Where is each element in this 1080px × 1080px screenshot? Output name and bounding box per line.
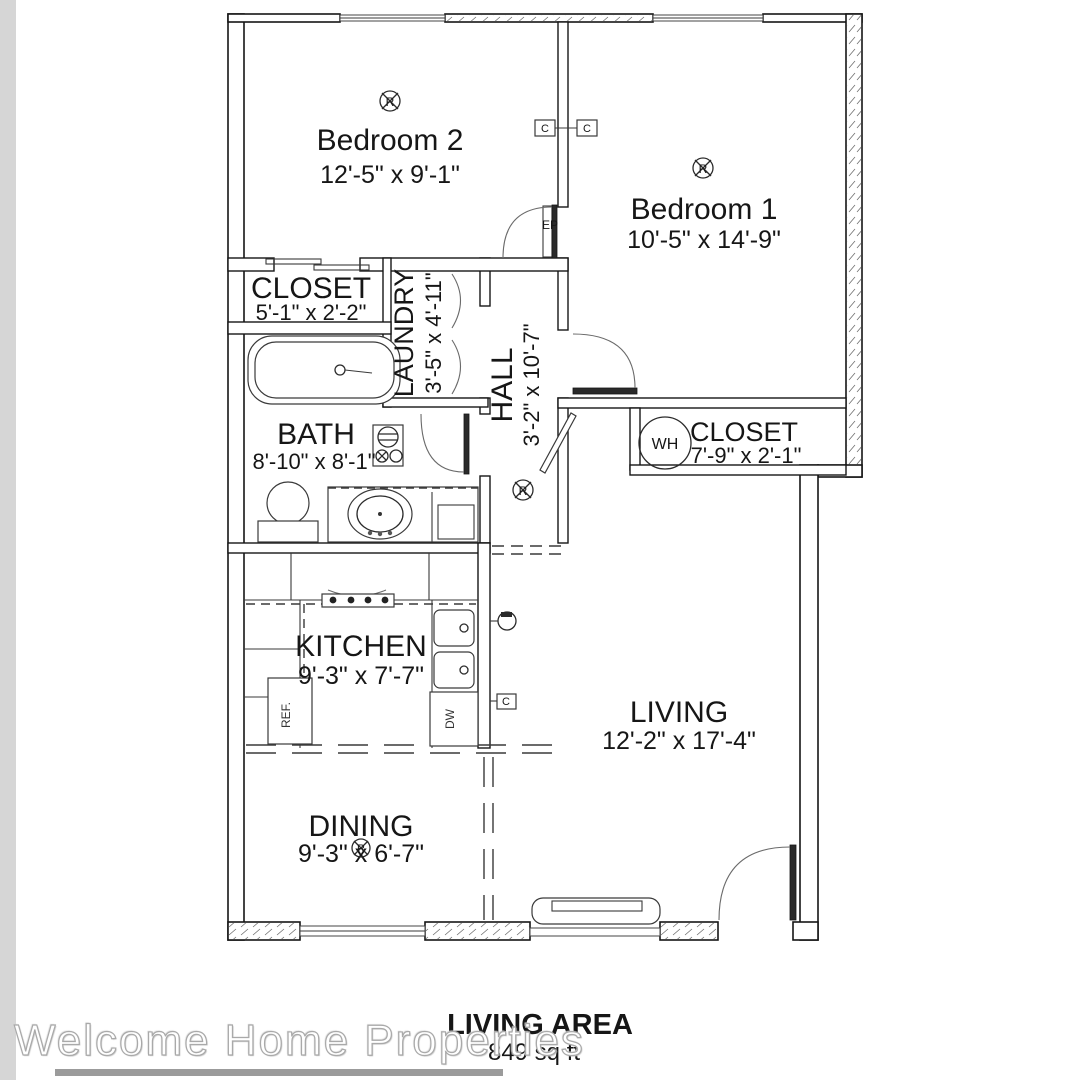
ceiling-fixture-bedroom1: R — [693, 158, 713, 178]
room-closet-wh: CLOSET 7'-9" x 2'-1" — [690, 417, 801, 468]
window-living-seat — [530, 898, 660, 936]
circuit-letter: C — [583, 123, 591, 135]
bath-fan-light-symbol — [373, 425, 403, 466]
refrigerator-label: REF. — [279, 702, 293, 728]
room-living: LIVING 12'-2" x 17'-4" — [602, 696, 756, 755]
window-dining — [300, 926, 425, 936]
ceiling-fixture-letter: R — [519, 484, 528, 498]
room-dims: 3'-5" x 4'-11" — [421, 272, 446, 393]
kitchen-range — [322, 590, 394, 607]
toilet — [258, 482, 318, 542]
room-kitchen: KITCHEN 9'-3" x 7'-7" — [295, 630, 427, 690]
room-dims: 5'-1" x 2'-2" — [256, 300, 367, 325]
ceiling-fixture-hall: R — [513, 480, 533, 500]
room-name: LIVING — [630, 696, 728, 729]
door-bath — [421, 414, 469, 474]
door-closet-slider — [266, 259, 369, 270]
door-laundry-bifold — [452, 274, 461, 394]
room-name: Bedroom 2 — [317, 124, 464, 157]
room-dims: 12'-2" x 17'-4" — [602, 727, 756, 755]
door-bedroom1 — [573, 334, 637, 394]
room-name: KITCHEN — [295, 630, 427, 663]
room-dims: 8'-10" x 8'-1" — [252, 449, 375, 474]
scan-edge-strip — [0, 0, 16, 1080]
room-dining: DINING 9'-3" x 6'-7" R — [298, 810, 424, 868]
dishwasher: DW — [430, 692, 478, 746]
floor-plan-drawing: REF. DW WH R R R C C — [0, 0, 1080, 1080]
kitchen-sink — [434, 610, 474, 688]
room-name: BATH — [277, 418, 355, 451]
room-name: Bedroom 1 — [631, 193, 778, 226]
water-heater: WH — [639, 417, 691, 469]
room-dims: 10'-5" x 14'-9" — [627, 226, 781, 254]
ceiling-fixture-letter: R — [357, 843, 365, 855]
ceiling-fixture-letter: R — [699, 162, 708, 176]
electrical-panel-label: EP — [542, 218, 558, 232]
bath-vanity-sink — [328, 487, 478, 542]
circuit-letter: C — [502, 696, 510, 708]
water-heater-label: WH — [652, 436, 679, 453]
room-hall: HALL 3'-2" x 10'-7" — [486, 323, 544, 446]
room-dims: 3'-2" x 10'-7" — [519, 323, 544, 446]
room-laundry: LAUNDRY 3'-5" x 4'-11" — [389, 269, 446, 398]
room-name: DINING — [309, 810, 414, 843]
room-name: HALL — [486, 347, 519, 422]
room-closet-top: CLOSET 5'-1" x 2'-2" — [251, 272, 371, 325]
watermark: Welcome Home Properties — [14, 1016, 585, 1066]
room-dims: 9'-3" x 7'-7" — [298, 662, 424, 690]
room-bath: BATH 8'-10" x 8'-1" — [252, 418, 375, 474]
thermostat-symbol — [490, 612, 516, 630]
window-bedroom2 — [340, 15, 445, 21]
bathtub — [248, 336, 400, 404]
door-entry — [719, 845, 796, 920]
circuit-marker-living-wall: C — [490, 694, 516, 709]
dishwasher-label: DW — [443, 708, 457, 729]
room-bedroom1: Bedroom 1 10'-5" x 14'-9" — [627, 193, 781, 254]
room-dims: 12'-5" x 9'-1" — [320, 161, 460, 189]
circuit-letter: C — [541, 123, 549, 135]
room-dims: 7'-9" x 2'-1" — [691, 443, 802, 468]
ceiling-fixture-letter: R — [386, 95, 395, 109]
watermark-underline — [55, 1069, 503, 1076]
room-name: LAUNDRY — [389, 269, 419, 398]
ceiling-fixture-bedroom2: R — [380, 91, 400, 111]
room-bedroom2: Bedroom 2 12'-5" x 9'-1" — [317, 124, 464, 189]
window-bedroom1 — [653, 15, 763, 21]
